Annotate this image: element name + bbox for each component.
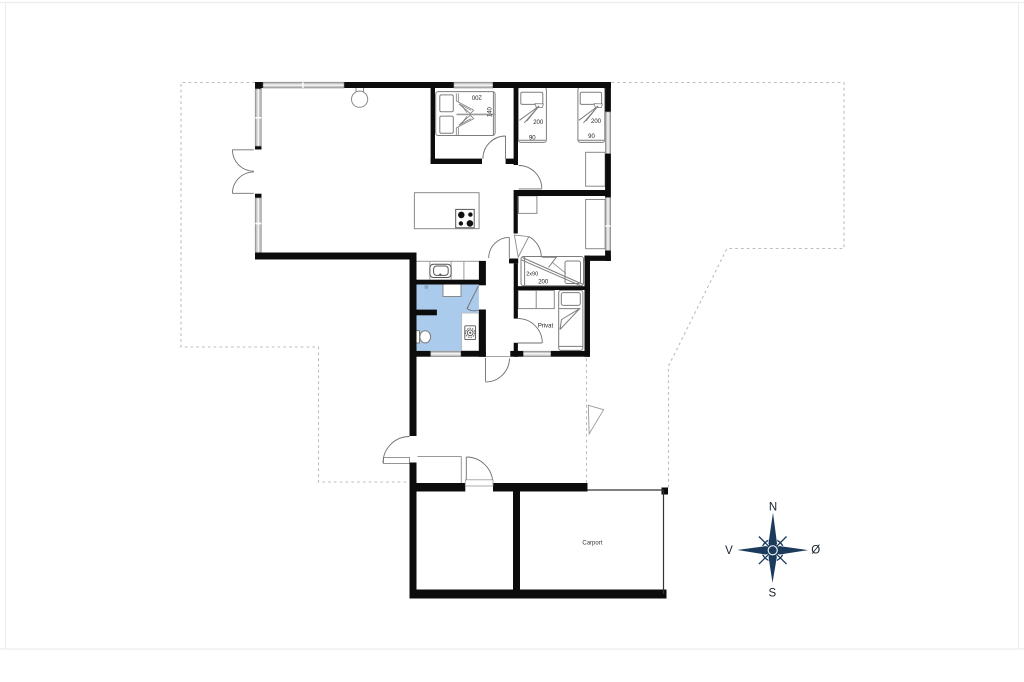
- svg-text:V: V: [725, 545, 733, 557]
- svg-text:200: 200: [538, 279, 549, 285]
- svg-text:N: N: [769, 501, 777, 513]
- svg-text:Carport: Carport: [582, 541, 602, 547]
- svg-text:200: 200: [471, 93, 482, 99]
- svg-text:Privat: Privat: [538, 324, 554, 330]
- svg-text:2x90: 2x90: [526, 271, 538, 277]
- svg-text:140: 140: [488, 106, 494, 117]
- svg-text:S: S: [768, 588, 776, 600]
- svg-text:90: 90: [588, 134, 595, 140]
- svg-text:Ø: Ø: [811, 545, 820, 557]
- svg-text:200: 200: [591, 119, 602, 125]
- svg-text:200: 200: [533, 120, 544, 126]
- svg-text:90: 90: [529, 136, 536, 142]
